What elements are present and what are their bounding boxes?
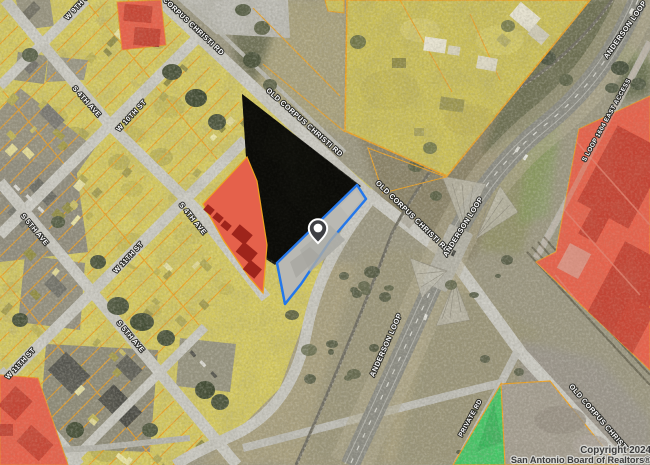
svg-text:San Antonio Board of Realtors®: San Antonio Board of Realtors® [511,455,650,465]
